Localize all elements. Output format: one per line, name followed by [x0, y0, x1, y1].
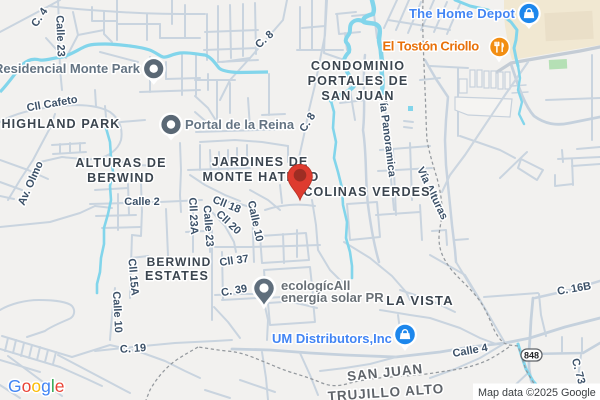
- svg-text:ALTURAS DE: ALTURAS DE: [75, 156, 166, 170]
- svg-text:El Tostón Criollo: El Tostón Criollo: [383, 39, 480, 54]
- svg-text:848: 848: [524, 350, 539, 360]
- svg-text:Cll 23A: Cll 23A: [186, 197, 200, 235]
- svg-text:Residencial Monte Park: Residencial Monte Park: [0, 61, 141, 76]
- svg-text:C. 19: C. 19: [120, 342, 147, 356]
- svg-text:Calle 2: Calle 2: [124, 196, 159, 208]
- svg-text:CONDOMINIO: CONDOMINIO: [311, 59, 405, 73]
- svg-text:energía solar PR: energía solar PR: [281, 290, 384, 305]
- svg-text:ESTATES: ESTATES: [145, 269, 209, 283]
- svg-text:SAN JUAN: SAN JUAN: [321, 89, 394, 103]
- svg-text:Calle 23: Calle 23: [53, 15, 66, 57]
- svg-text:Google: Google: [8, 376, 64, 396]
- svg-text:Map data ©2025 Google: Map data ©2025 Google: [478, 387, 596, 399]
- svg-text:The Home Depot: The Home Depot: [409, 6, 516, 21]
- svg-text:Calle 10: Calle 10: [110, 291, 124, 333]
- svg-text:BERWIND: BERWIND: [147, 255, 212, 269]
- svg-text:UM Distributors,Inc: UM Distributors,Inc: [272, 331, 392, 346]
- svg-text:COLINAS VERDES: COLINAS VERDES: [303, 185, 430, 199]
- svg-text:PORTALES DE: PORTALES DE: [308, 74, 409, 88]
- svg-text:Portal de la Reina: Portal de la Reina: [185, 117, 295, 132]
- svg-text:LA VISTA: LA VISTA: [386, 293, 453, 308]
- svg-text:HIGHLAND PARK: HIGHLAND PARK: [1, 117, 120, 131]
- svg-text:BERWIND: BERWIND: [87, 171, 155, 185]
